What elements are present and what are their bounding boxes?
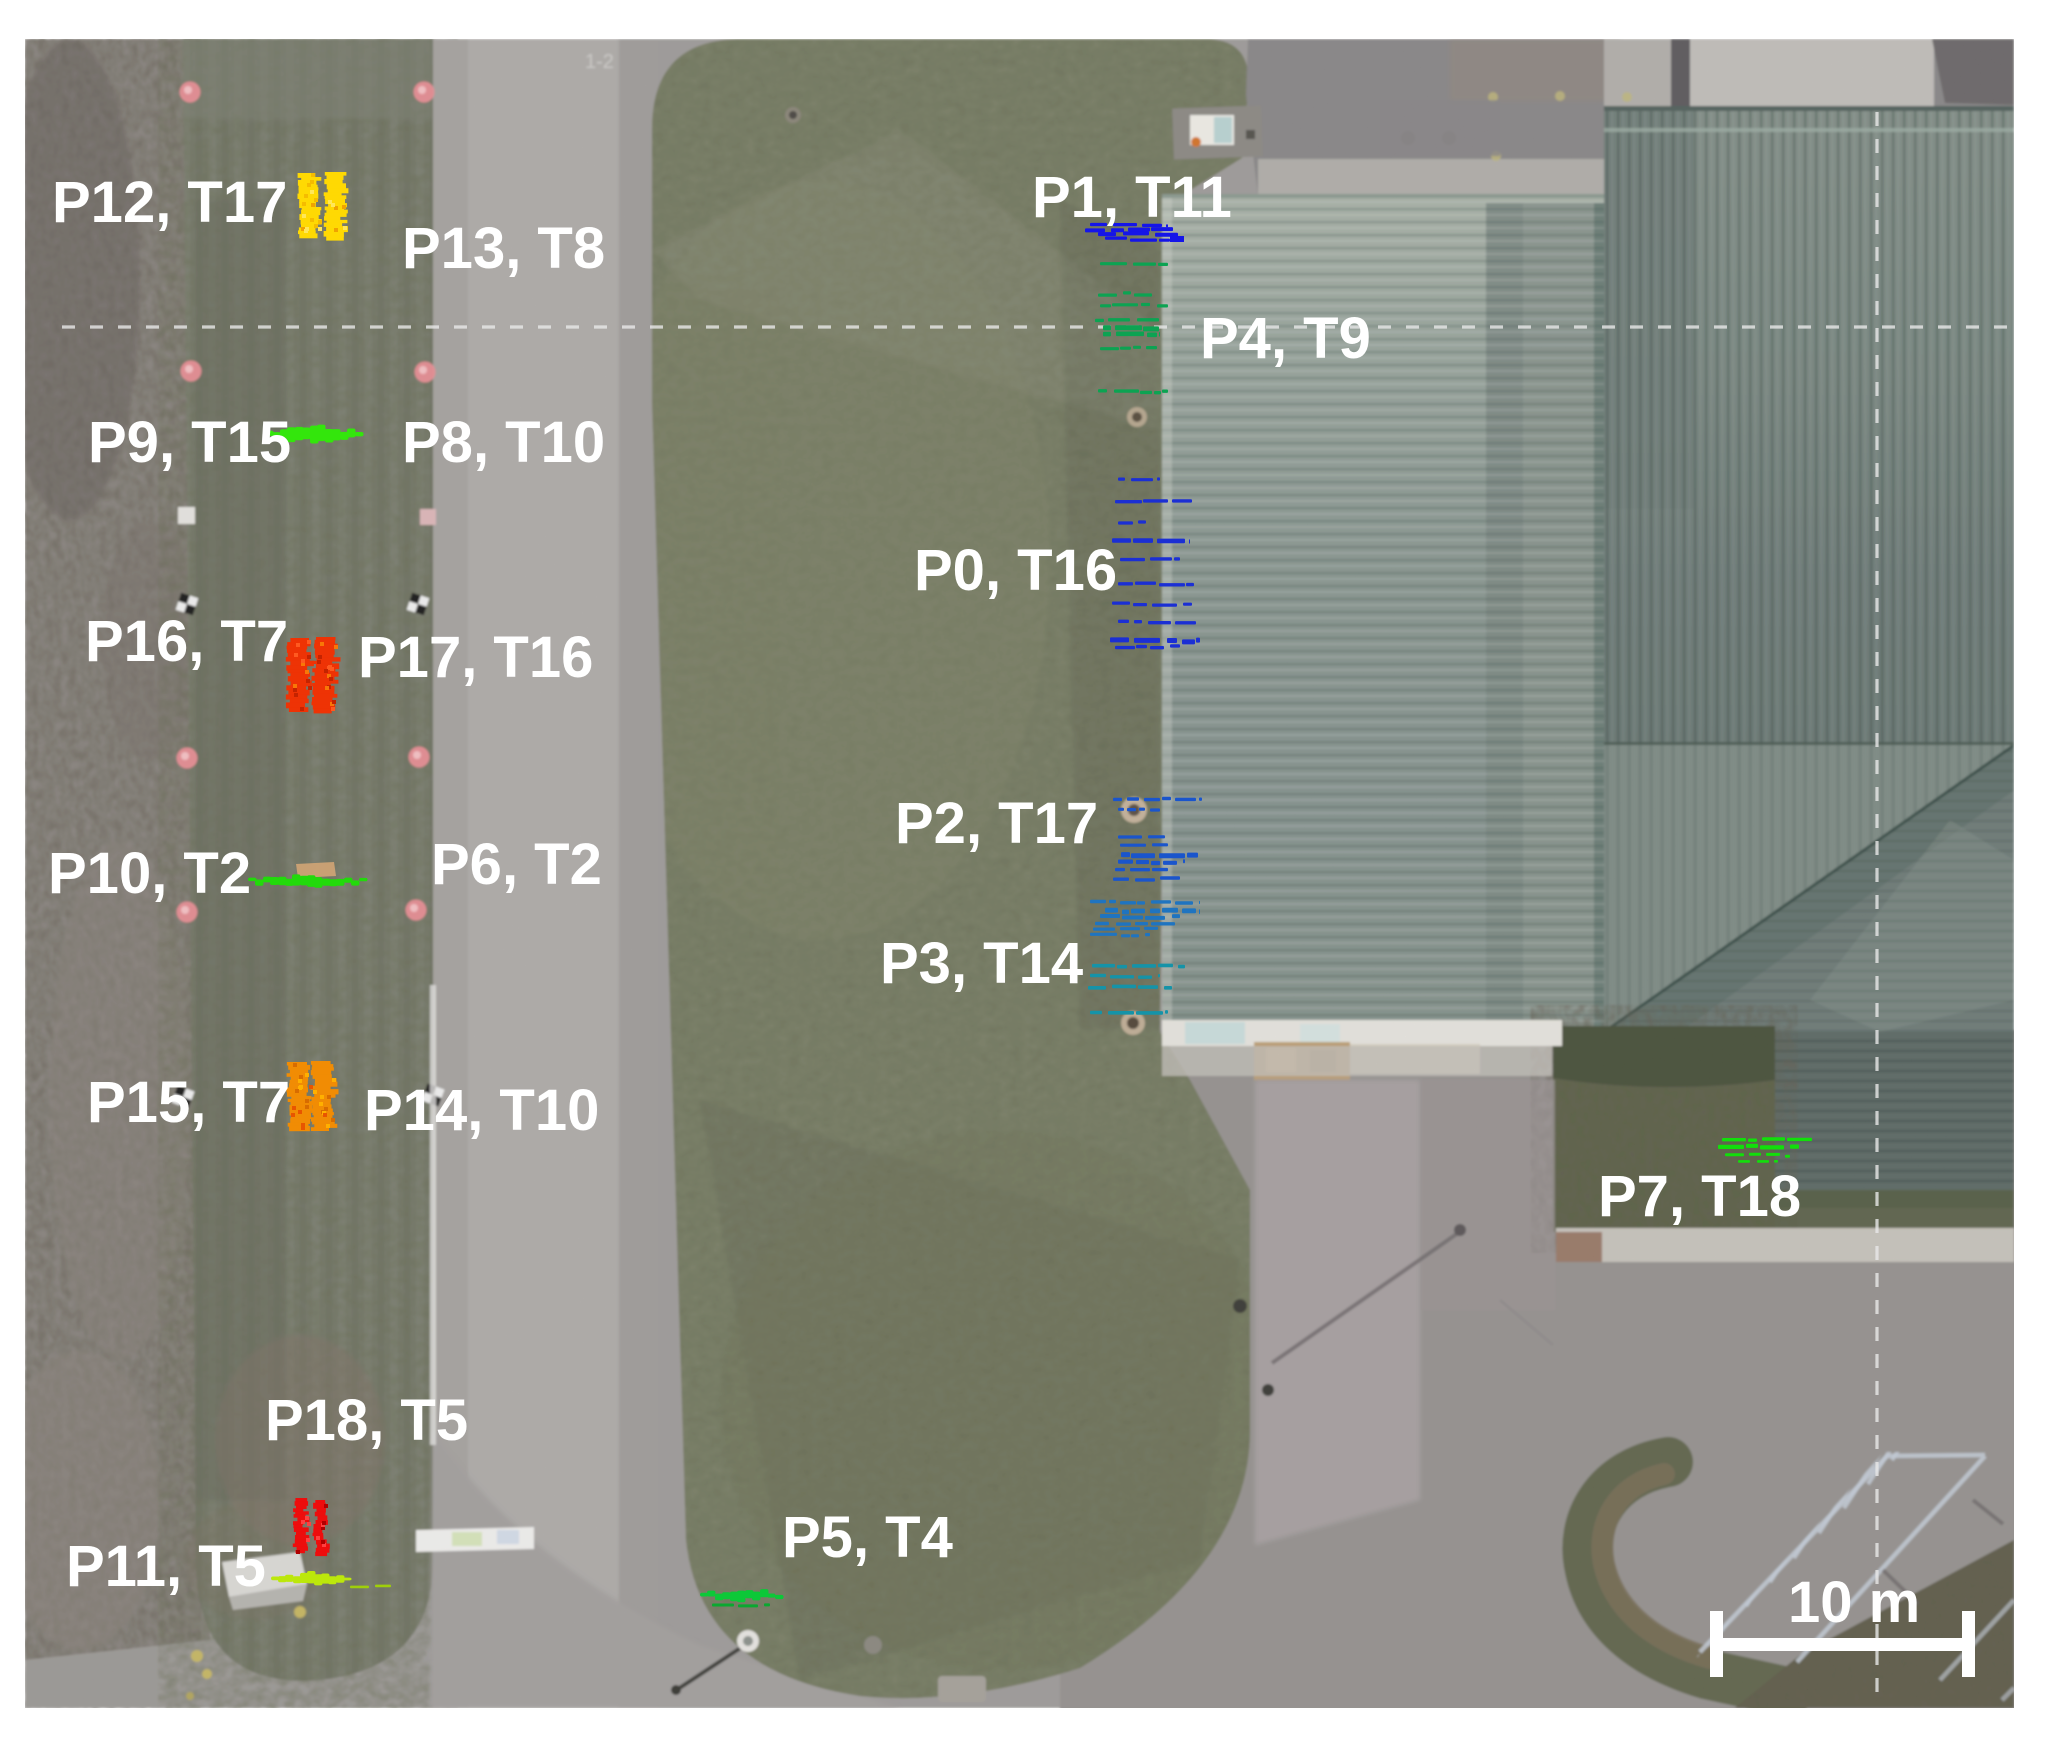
svg-text:P17, T16: P17, T16 bbox=[358, 625, 593, 690]
svg-text:P1, T11: P1, T11 bbox=[1032, 165, 1232, 230]
svg-text:P18, T5: P18, T5 bbox=[265, 1388, 468, 1453]
svg-text:P16, T7: P16, T7 bbox=[85, 609, 288, 674]
svg-text:P8, T10: P8, T10 bbox=[402, 410, 605, 475]
svg-text:P14, T10: P14, T10 bbox=[364, 1078, 599, 1143]
svg-text:P3, T14: P3, T14 bbox=[880, 931, 1083, 996]
svg-text:P9, T15: P9, T15 bbox=[88, 410, 291, 475]
svg-text:10 m: 10 m bbox=[1788, 1570, 1920, 1635]
svg-text:P4, T9: P4, T9 bbox=[1200, 306, 1371, 371]
svg-text:P6, T2: P6, T2 bbox=[431, 832, 602, 897]
svg-text:P2, T17: P2, T17 bbox=[895, 791, 1098, 856]
svg-text:P15, T7: P15, T7 bbox=[87, 1070, 290, 1135]
svg-text:P7, T18: P7, T18 bbox=[1598, 1164, 1801, 1229]
svg-text:P13, T8: P13, T8 bbox=[402, 216, 605, 281]
svg-text:P11, T5: P11, T5 bbox=[66, 1534, 266, 1599]
svg-text:P0, T16: P0, T16 bbox=[914, 538, 1117, 603]
svg-text:P10, T2: P10, T2 bbox=[48, 841, 251, 906]
svg-text:P5, T4: P5, T4 bbox=[782, 1505, 953, 1570]
svg-text:P12, T17: P12, T17 bbox=[52, 170, 287, 235]
